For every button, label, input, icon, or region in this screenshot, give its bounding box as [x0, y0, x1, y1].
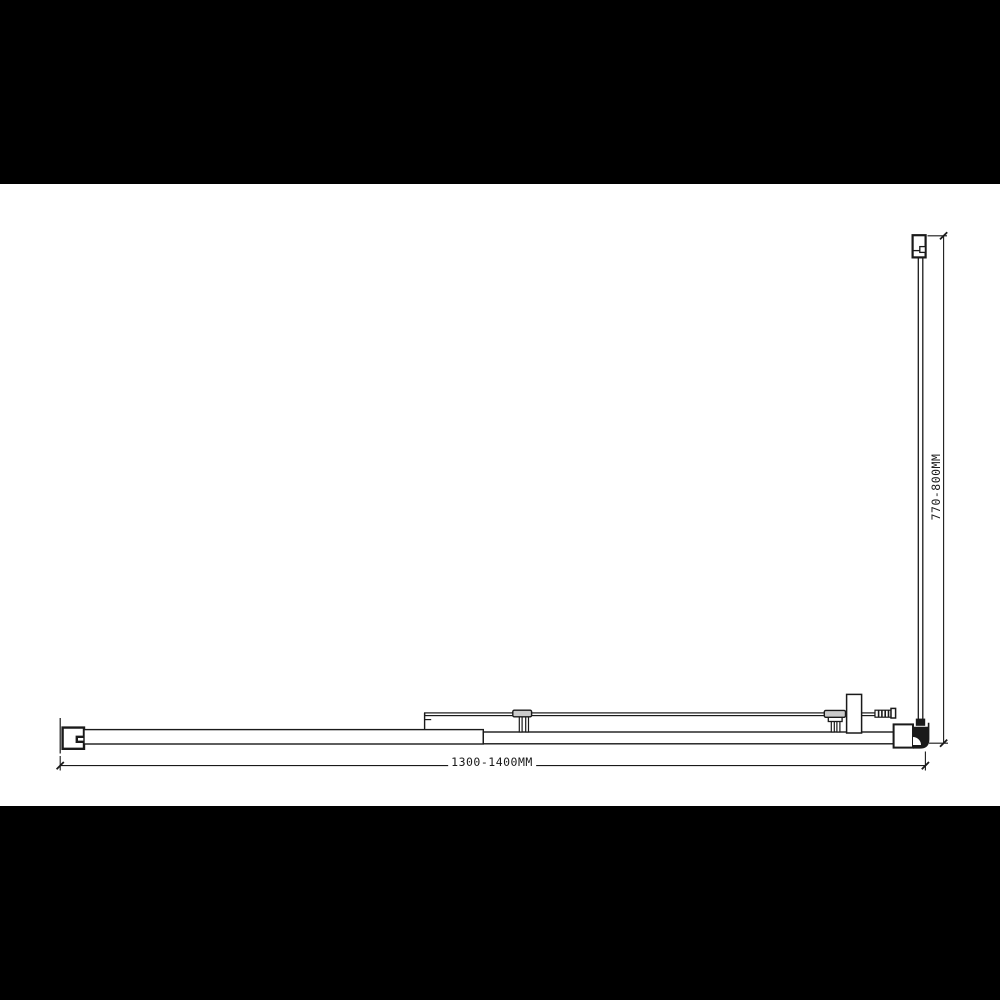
drawing-canvas: 1300-1400MM 770-800MM	[0, 0, 1000, 1000]
fixed-panel-frame	[84, 730, 483, 744]
support-post	[847, 694, 862, 733]
wall-profile-left	[63, 728, 84, 749]
bottom-rail	[483, 732, 893, 744]
depth-dimension-label: 770-800MM	[930, 451, 942, 524]
wall-profile-top	[913, 235, 926, 257]
front-assembly	[60, 694, 928, 753]
adjustable-wall-mount	[875, 708, 896, 718]
enclosure-plan-drawing	[0, 0, 1000, 1000]
roller-cap-1	[513, 710, 532, 717]
corner-connector	[894, 719, 929, 748]
return-panel	[913, 235, 926, 722]
support-bar	[425, 713, 875, 730]
roller-bracket-2	[824, 710, 845, 732]
roller-bracket-1	[513, 710, 532, 732]
width-dimension-label: 1300-1400MM	[448, 756, 536, 768]
roller-cap-2	[824, 710, 845, 717]
